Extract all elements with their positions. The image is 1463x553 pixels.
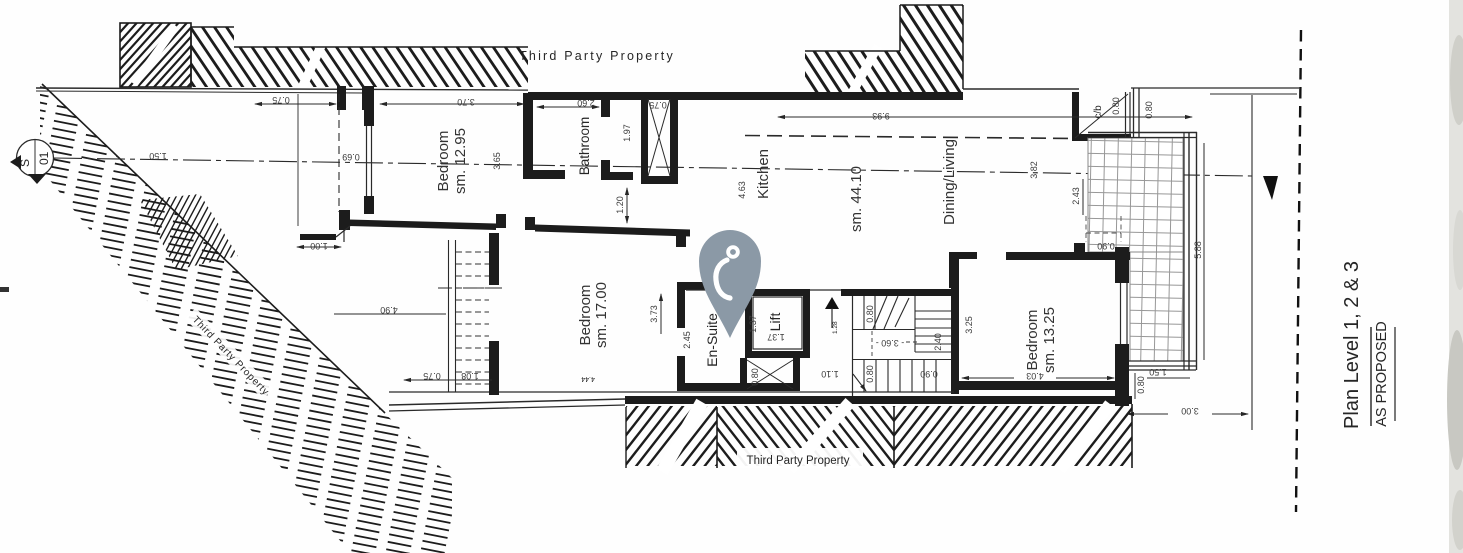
- svg-text:3.73: 3.73: [649, 305, 659, 323]
- svg-text:1.37: 1.37: [767, 332, 785, 342]
- svg-text:Plan Level 1, 2 & 3: Plan Level 1, 2 & 3: [1341, 261, 1363, 429]
- svg-text:1.37: 1.37: [748, 315, 758, 333]
- svg-text:1.50: 1.50: [149, 151, 167, 161]
- svg-text:0.80: 0.80: [1144, 101, 1154, 119]
- svg-text:4.90: 4.90: [380, 305, 398, 315]
- svg-text:sm. 12.95: sm. 12.95: [452, 128, 469, 194]
- svg-text:0.75: 0.75: [649, 100, 667, 110]
- svg-text:2.60: 2.60: [577, 98, 595, 108]
- svg-text:1.50: 1.50: [1149, 367, 1167, 377]
- svg-text:Third Party Property: Third Party Property: [747, 455, 850, 467]
- svg-text:1.97: 1.97: [622, 124, 632, 142]
- svg-text:sm. 44.10: sm. 44.10: [848, 166, 865, 232]
- svg-text:sm. 17.00: sm. 17.00: [593, 282, 610, 348]
- svg-text:0.80: 0.80: [1136, 376, 1146, 394]
- svg-text:0.75: 0.75: [272, 95, 290, 105]
- svg-text:01: 01: [37, 151, 51, 165]
- svg-text:Bedroom: Bedroom: [435, 131, 452, 192]
- svg-text:1.10: 1.10: [821, 369, 839, 379]
- svg-text:0.90: 0.90: [920, 369, 938, 379]
- svg-text:0.80: 0.80: [865, 305, 875, 323]
- svg-text:Third Party Property: Third Party Property: [519, 49, 675, 63]
- svg-text:2.40: 2.40: [933, 333, 943, 351]
- svg-text:Bedroom: Bedroom: [577, 285, 594, 346]
- svg-text:3.70: 3.70: [457, 97, 475, 107]
- svg-text:3.00: 3.00: [1181, 406, 1199, 416]
- svg-text:AS PROPOSED: AS PROPOSED: [1374, 321, 1390, 427]
- svg-text:0.80: 0.80: [865, 365, 875, 383]
- svg-text:0.80: 0.80: [750, 368, 760, 386]
- svg-text:2.43: 2.43: [1071, 187, 1081, 205]
- svg-text:1.28: 1.28: [832, 321, 839, 334]
- svg-text:sm. 13.25: sm. 13.25: [1041, 307, 1058, 373]
- svg-text:3.65: 3.65: [492, 152, 502, 170]
- svg-text:5.88: 5.88: [1193, 241, 1203, 259]
- svg-text:9.93: 9.93: [872, 111, 890, 121]
- svg-text:2.45: 2.45: [682, 331, 692, 349]
- svg-text:4.63: 4.63: [737, 181, 747, 199]
- svg-text:0.69: 0.69: [342, 152, 360, 162]
- svg-text:En-Suite: En-Suite: [704, 313, 720, 367]
- svg-text:1.00: 1.00: [310, 241, 328, 251]
- svg-text:Kitchen: Kitchen: [755, 149, 772, 199]
- svg-text:4.44: 4.44: [581, 375, 595, 382]
- svg-text:Bathroom: Bathroom: [577, 117, 592, 176]
- svg-text:c/b: c/b: [1093, 105, 1104, 119]
- svg-text:3.25: 3.25: [964, 316, 974, 334]
- svg-text:1.20: 1.20: [615, 196, 625, 214]
- svg-text:Dining/Living: Dining/Living: [941, 139, 958, 225]
- svg-text:Lift: Lift: [767, 313, 783, 332]
- svg-text:Bedroom: Bedroom: [1024, 310, 1041, 371]
- svg-text:- 3.60 -: - 3.60 -: [876, 338, 905, 348]
- svg-text:0.75: 0.75: [423, 371, 441, 381]
- svg-text:0.90: 0.90: [1097, 241, 1115, 251]
- svg-text:3.82: 3.82: [1029, 161, 1039, 179]
- svg-text:0.80: 0.80: [1111, 97, 1121, 115]
- svg-text:1.08: 1.08: [461, 371, 479, 381]
